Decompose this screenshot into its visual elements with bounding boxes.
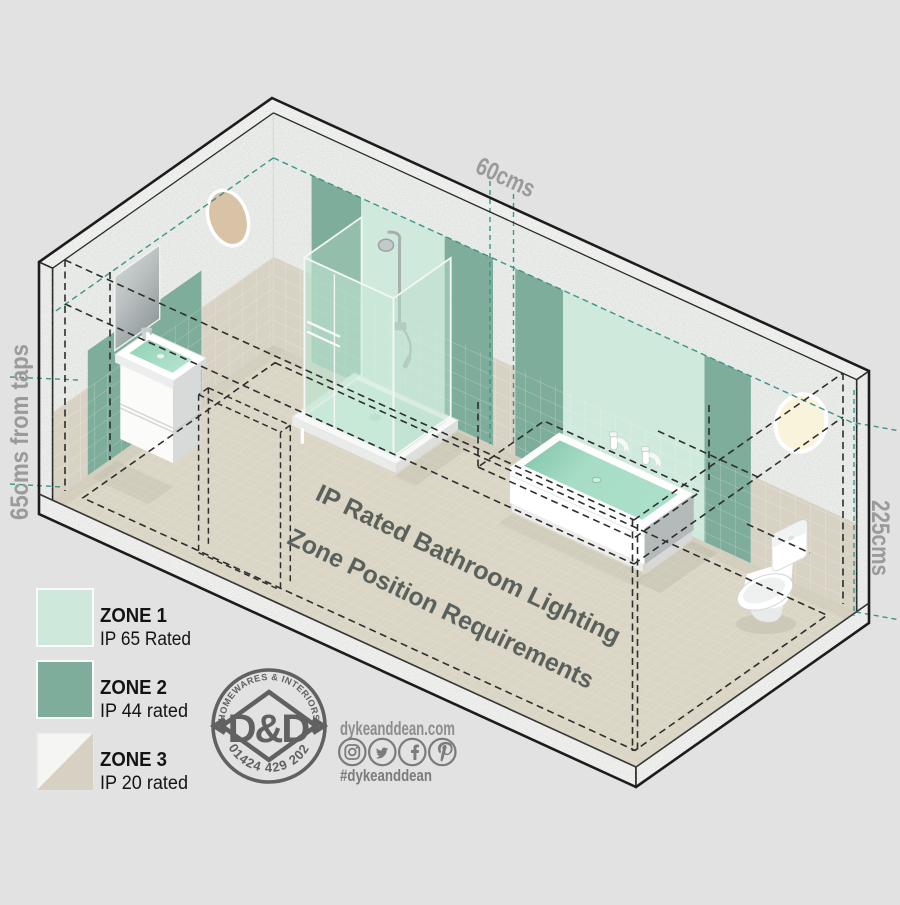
svg-text:IP 44 rated: IP 44 rated: [100, 701, 188, 722]
svg-text:ZONE 1: ZONE 1: [100, 604, 167, 627]
svg-text:#dykeanddean: #dykeanddean: [340, 766, 432, 785]
svg-text:dykeanddean.com: dykeanddean.com: [340, 719, 455, 740]
svg-text:D&D: D&D: [228, 707, 310, 751]
svg-text:IP 65 Rated: IP 65 Rated: [100, 629, 191, 650]
svg-text:ZONE 2: ZONE 2: [100, 676, 167, 699]
svg-text:65cms from taps: 65cms from taps: [6, 344, 34, 520]
svg-text:ZONE 3: ZONE 3: [100, 748, 167, 771]
svg-text:IP 20 rated: IP 20 rated: [100, 773, 188, 794]
svg-text:225cms: 225cms: [866, 500, 894, 576]
